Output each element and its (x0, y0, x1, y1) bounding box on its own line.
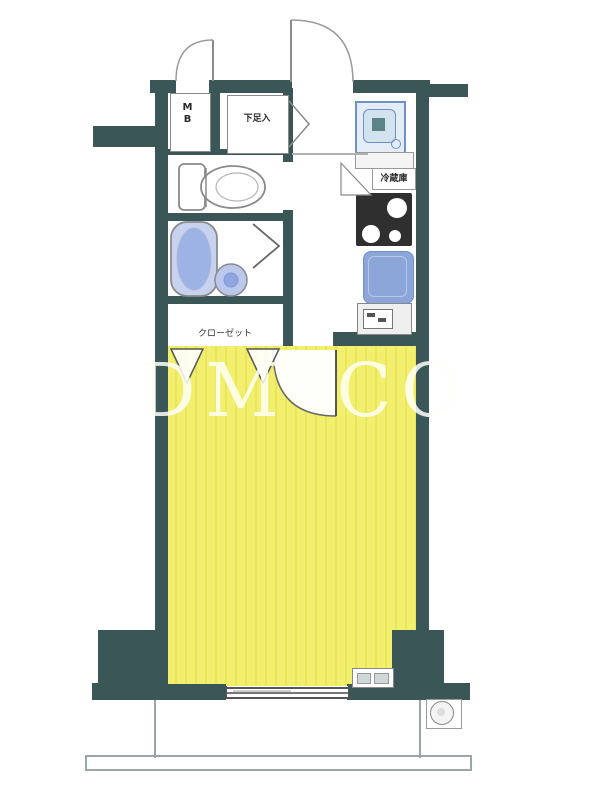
toilet-fixture (179, 164, 265, 210)
meterbox-door-arc (176, 40, 213, 81)
refrigerator-label: 冷蔵庫 (372, 168, 416, 190)
washbasin-fixture (215, 264, 247, 296)
bathroom-door-mark (253, 224, 279, 268)
shoe-cabinet-label: 下足入 (230, 115, 284, 125)
meter-box-label: MB (182, 102, 193, 126)
floor-plan: MB 下足入 冷蔵庫 クローゼット DM CO (0, 0, 600, 800)
watermark-text: DM CO (138, 348, 470, 434)
bathtub-fixture (171, 222, 217, 296)
shoe-cabinet-door-mark (289, 101, 309, 147)
toilet-door-swing-mark (341, 163, 371, 195)
closet-label: クローゼット (180, 330, 270, 340)
entrance-door-arc (291, 20, 353, 82)
